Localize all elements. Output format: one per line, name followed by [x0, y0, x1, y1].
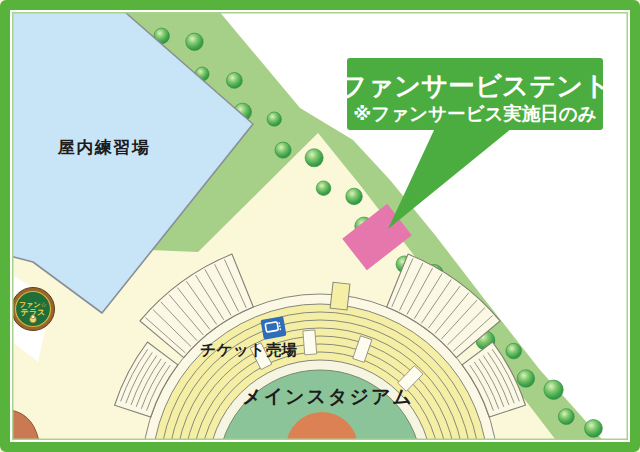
map-canvas: 屋内練習場 ファン☆ テラス	[0, 0, 640, 452]
callout-title: ファンサービステント	[340, 71, 611, 101]
bush-icon	[186, 33, 203, 50]
bush-icon	[316, 181, 331, 196]
bush-icon	[275, 142, 291, 158]
bush-icon	[517, 370, 534, 387]
bush-icon	[558, 409, 574, 425]
stadium-gate-tab	[330, 282, 350, 310]
ticket-office-label: チケット売場	[200, 341, 297, 358]
facility-map: 屋内練習場 ファン☆ テラス	[0, 0, 640, 452]
bush-icon	[506, 343, 522, 359]
ticket-icon	[260, 316, 286, 340]
badge-line1: ファン☆	[19, 301, 47, 308]
fan-terrace-badge: ファン☆ テラス	[12, 288, 55, 331]
bush-icon	[305, 149, 323, 167]
bush-icon	[544, 380, 563, 399]
indoor-practice-label: 屋内練習場	[57, 138, 151, 157]
bush-icon	[267, 112, 281, 126]
callout-note: ※ファンサービス実施日のみ	[353, 103, 597, 124]
bush-icon	[585, 419, 603, 437]
bush-icon	[346, 188, 362, 204]
main-stadium-label: メインスタジアム	[242, 386, 414, 407]
bush-icon	[226, 73, 242, 89]
